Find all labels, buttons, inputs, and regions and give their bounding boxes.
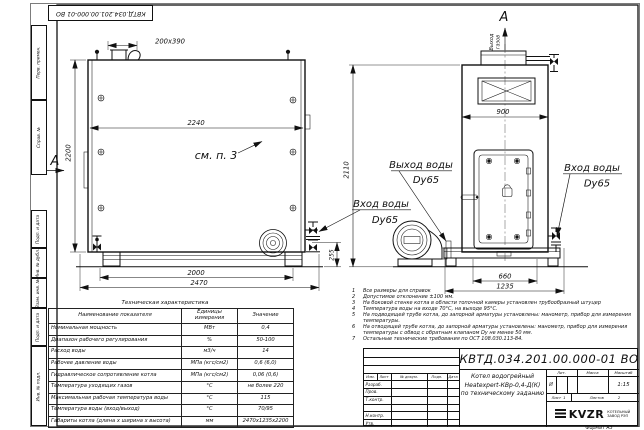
tb-col-dokum: № докум. [391,373,427,380]
dim-side-height: 2110 [343,161,351,178]
tb-row-prov: Пров. [366,389,378,394]
dim-front-base: 2000 [187,269,204,277]
gas-out-label-1: Выход [489,33,495,50]
table-row: Температура уходящих газов°Сне более 220 [49,381,294,393]
format-label: Формат А3 [560,426,638,430]
top-stamp-number: КВТД.034.201.00.000-01 ВО [56,10,146,17]
dim-side-width: 900 [497,108,510,116]
lit-label: Лит. [546,369,577,376]
logo-text: KVZR [569,408,604,421]
tech-table-title: Техническая характеристика [48,300,282,306]
tb-row-nkontr: Н.контр. [366,413,385,418]
front-view: 200х390 2240 см. п. 3 2200 А 2000 2470 2… [46,38,341,292]
margin-col-sprav-no: Справ. № [31,100,47,175]
gas-out-label-2: газов [496,35,502,49]
gas-valve-icon [549,55,559,72]
scale-value: 1:15 [608,376,639,393]
tb-col-izm: Изм. [364,373,377,380]
margin-col-inv-podl: Инв. № подл. [31,346,47,426]
table-row: Температура воды (вход/выход)°С70/95 [49,405,294,417]
product-name: Котел водогрейный Heatexpert-КВр-0,4-Д(К… [459,369,546,427]
water-out-label: Выход воды [389,160,453,171]
table-row: Номинальная мощностьМВт0,4 [49,323,294,335]
water-in-left-dn: Dy65 [372,215,398,226]
sheet-cell: Лист 1 [546,393,571,401]
dim-front-height: 2200 [65,144,73,161]
mass-label: Масса [577,369,608,376]
sheets-cell: Листов 2 [571,393,639,401]
margin-col-vzam-inv: Взам. инв. № [31,278,47,308]
margin-col-perv-primen: Перв. примен. [31,25,47,100]
top-stamp: КВТД.034.201.00.000-01 ВО [48,5,153,21]
tech-table: Наименование показателя Единицы измерени… [48,308,294,428]
margin-col-inv-dubl: Инв. № дубл. [31,248,47,278]
doc-number: КВТД.034.201.00.000-01 ВО [459,349,639,369]
tb-col-podp: Подп. [427,373,447,380]
side-view: А Выход газов 900 [343,10,589,294]
company-logo: KVZR КОТЕЛЬНЫЙ ЗАВОД РЭП [546,401,639,427]
water-in-right-dn: Dy65 [584,179,610,190]
water-in-left-label: Вход воды [353,199,409,210]
inlet-valve-icon [305,222,320,252]
notes-list: 1Все размеры для справок2Допустимое откл… [352,288,636,342]
col-header-name: Наименование показателя [49,309,182,324]
dim-front-width: 2240 [187,119,204,127]
table-row: Габариты котла (длина х ширина х высота)… [49,416,294,428]
tb-col-list: Лист [377,373,391,380]
lifting-lug-icon [95,50,290,60]
tech-table-header-row: Наименование показателя Единицы измерени… [49,309,294,324]
tech-characteristics: Техническая характеристика Наименование … [48,300,282,428]
water-out-dn: Dy65 [413,175,439,186]
section-label-front: А [50,154,60,169]
table-row: Гидравлическое сопротивление котлаМПа (к… [49,370,294,382]
section-label-side: А [499,10,509,25]
title-block: Изм. Лист № докум. Подп. Дата Разраб. Пр… [363,348,638,426]
table-row: Расход водым3/ч14 [49,347,294,359]
dim-side-base: 660 [499,273,512,281]
tb-row-utv: Утв. [366,421,375,426]
note-item: 6На отводящей трубе котла, до запорной а… [352,324,636,336]
tb-row-tkontr: Т.контр. [366,397,384,402]
tb-row-razrab: Разраб. [366,382,382,387]
tech-table-body: Номинальная мощностьМВт0,4Диапазон рабоч… [49,323,294,427]
tb-col-data: Дата [447,373,459,380]
table-row: Максимальная рабочая температура воды°С1… [49,393,294,405]
note-item: 7Остальные технические требования по ОСТ… [352,336,636,342]
margin-col-podp-data-1: Подп. и дата [31,210,47,248]
scale-label: Масштаб [608,369,639,376]
dim-front-offset: 255 [329,249,336,261]
dim-chimney: 200х390 [155,38,185,46]
margin-col-podp-data-2: Подп. и дата [31,308,47,346]
water-in-right-label: Вход воды [564,163,620,174]
note-item: 5На подводящей трубе котла, до запорной … [352,312,636,324]
table-row: Рабочее давление водыМПа (кгс/см2)0,6 (6… [49,358,294,370]
dim-front-total: 2470 [190,279,207,287]
callout-see-note: см. п. 3 [195,149,238,162]
col-header-value: Значение [238,309,294,324]
kvzr-logo-icon [555,409,566,419]
drawing-sheet: 200х390 2240 см. п. 3 2200 А 2000 2470 2… [0,0,644,430]
lit-value: И [546,376,556,393]
col-header-units: Единицы измерения [182,309,238,324]
blower-fan-icon [393,221,451,266]
table-row: Диапазон рабочего регулирования%50-100 [49,335,294,347]
logo-caption: КОТЕЛЬНЫЙ ЗАВОД РЭП [607,410,630,419]
